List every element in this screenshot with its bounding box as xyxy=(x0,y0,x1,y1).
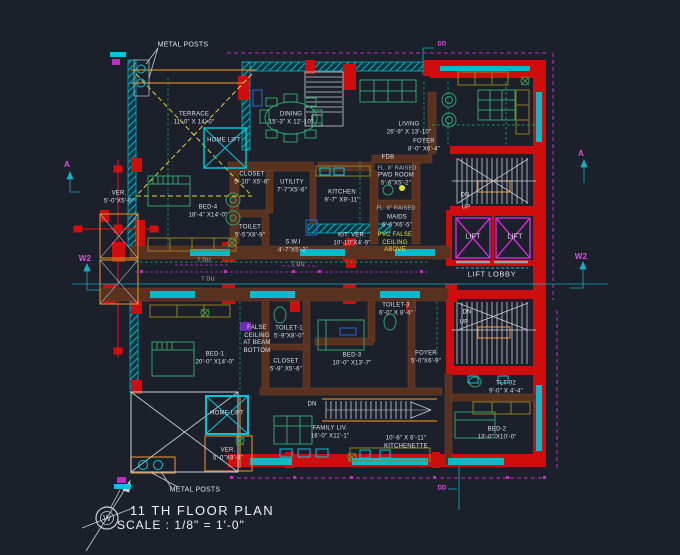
drawing-title: 11 TH FLOOR PLAN xyxy=(130,503,274,518)
lift-core-walls xyxy=(449,213,537,263)
centerlines-cyan xyxy=(67,48,608,510)
north-arrow-letter: W xyxy=(103,514,111,523)
drawing-scale: SCALE : 1/8" = 1'-0" xyxy=(117,518,245,532)
floorplan-linework: W xyxy=(0,0,680,555)
cad-floor-plan-canvas: W METAL POSTS TERRACE 11'-0" X 14'-0" HO… xyxy=(0,0,680,555)
